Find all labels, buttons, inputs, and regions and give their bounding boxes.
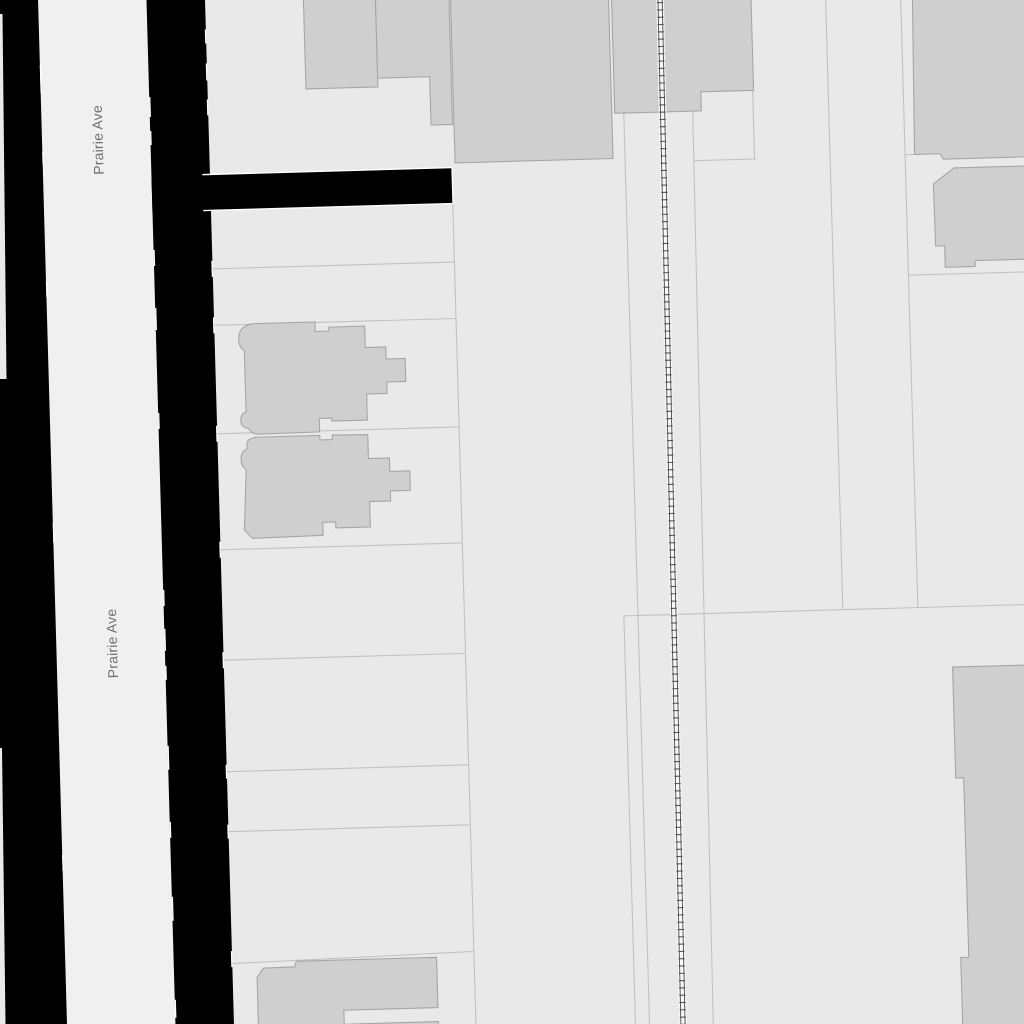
svg-text:Prairie Ave: Prairie Ave [103,608,121,678]
svg-text:Prairie Ave: Prairie Ave [89,105,107,175]
